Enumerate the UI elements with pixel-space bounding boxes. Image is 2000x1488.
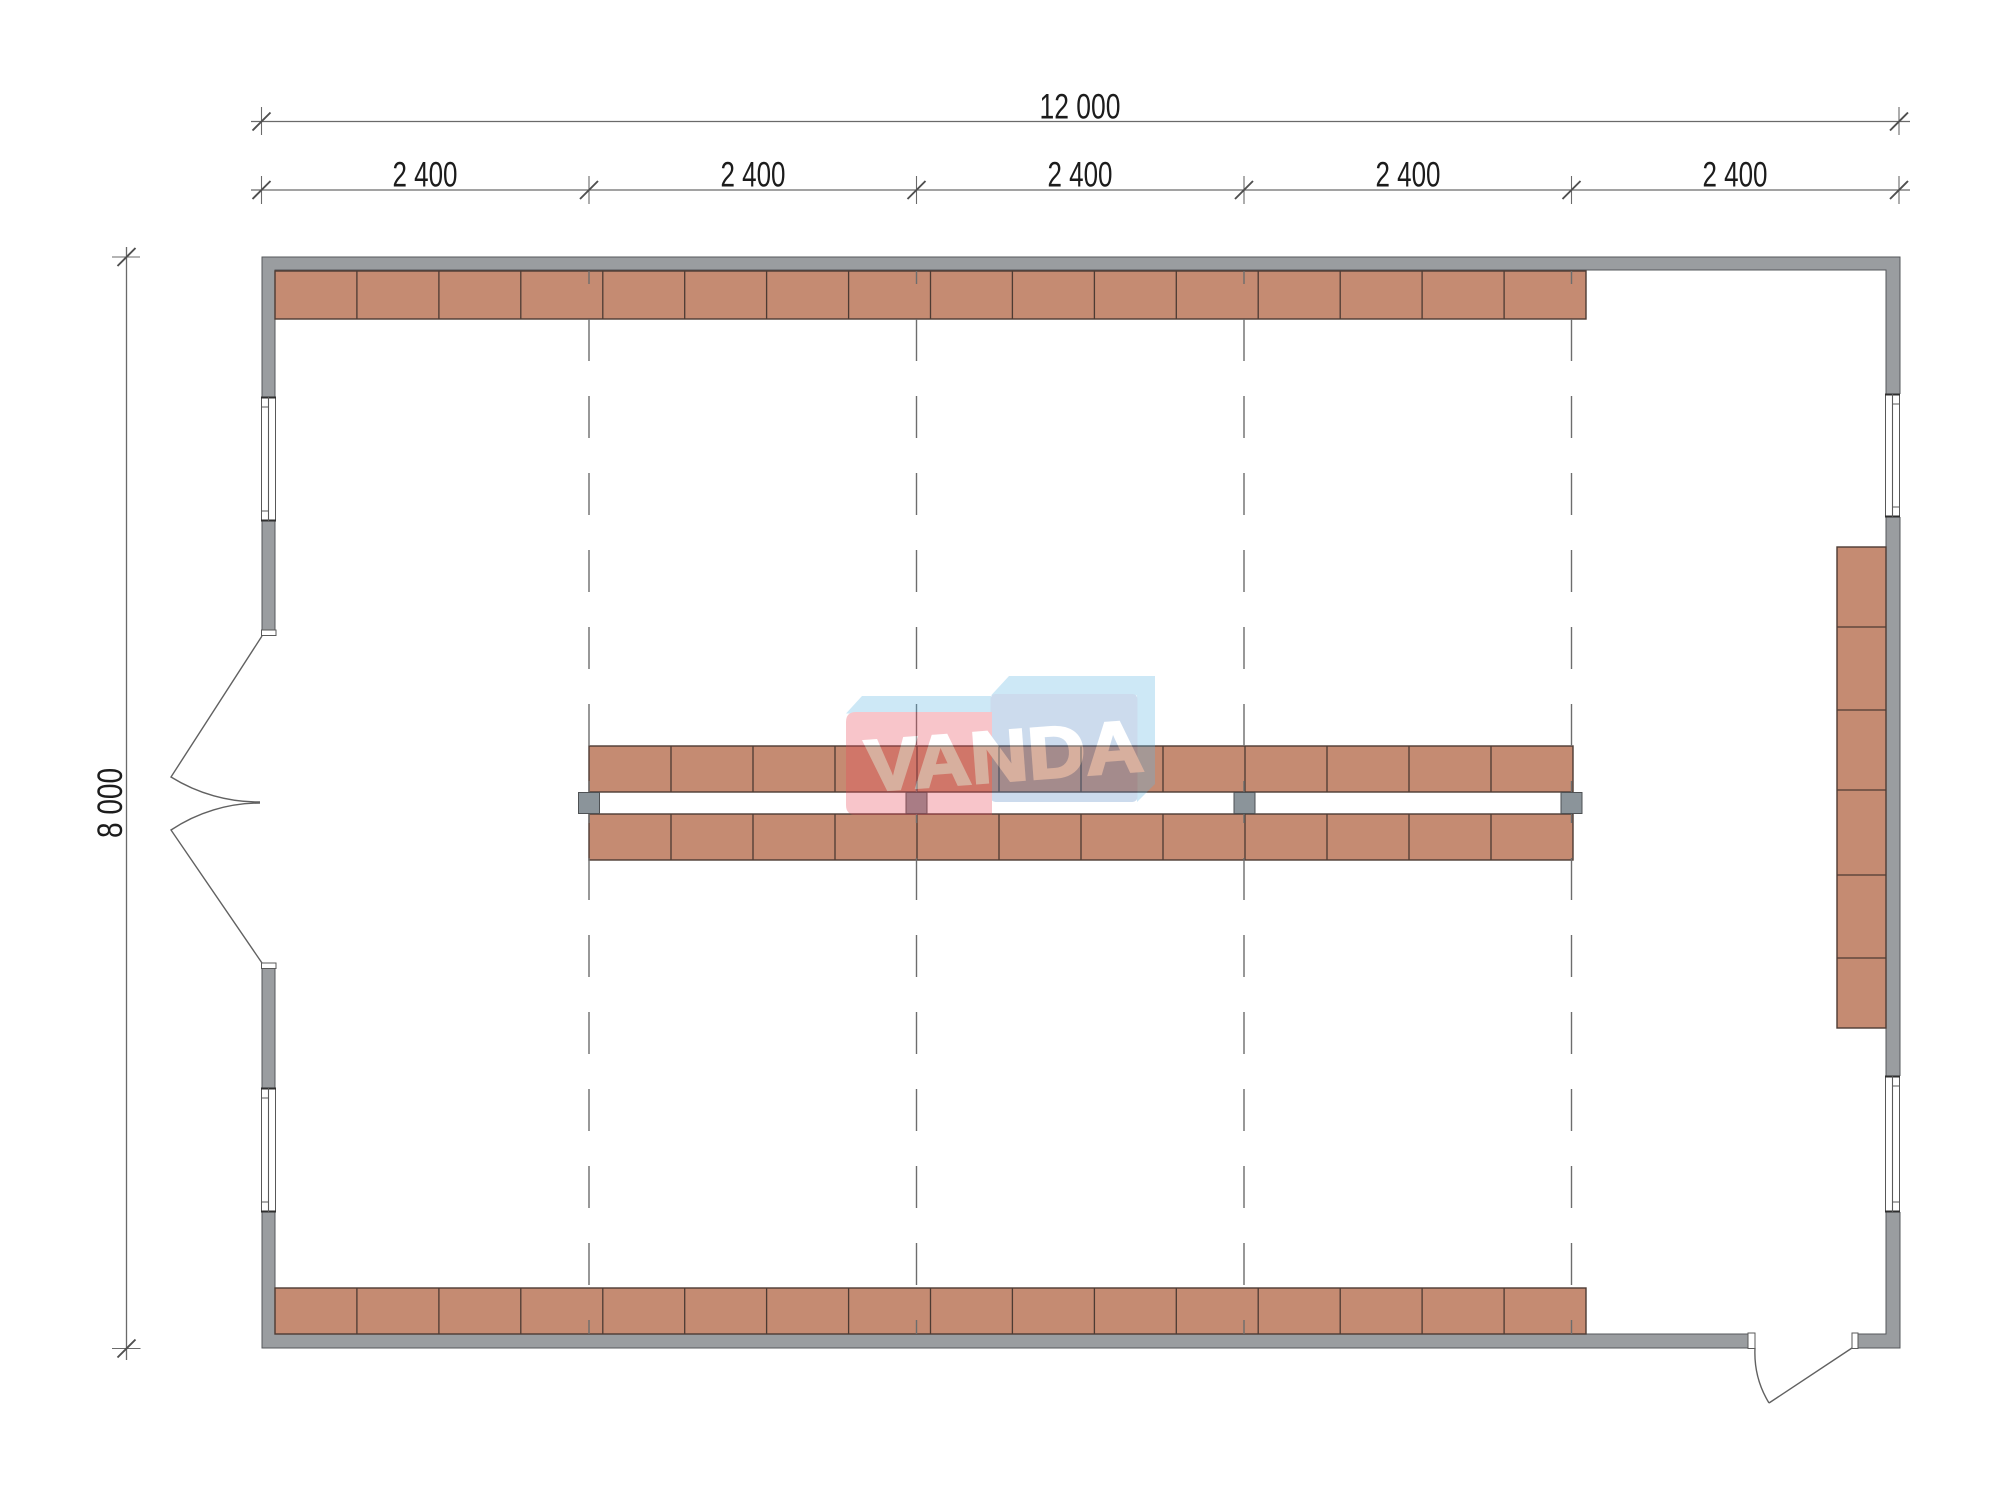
svg-text:2 400: 2 400 <box>1048 156 1113 195</box>
svg-text:2 400: 2 400 <box>1703 156 1768 195</box>
svg-text:2 400: 2 400 <box>721 156 786 195</box>
svg-text:2 400: 2 400 <box>1376 156 1441 195</box>
svg-text:8 000: 8 000 <box>91 768 130 838</box>
svg-text:12 000: 12 000 <box>1040 88 1121 127</box>
svg-text:2 400: 2 400 <box>393 156 458 195</box>
